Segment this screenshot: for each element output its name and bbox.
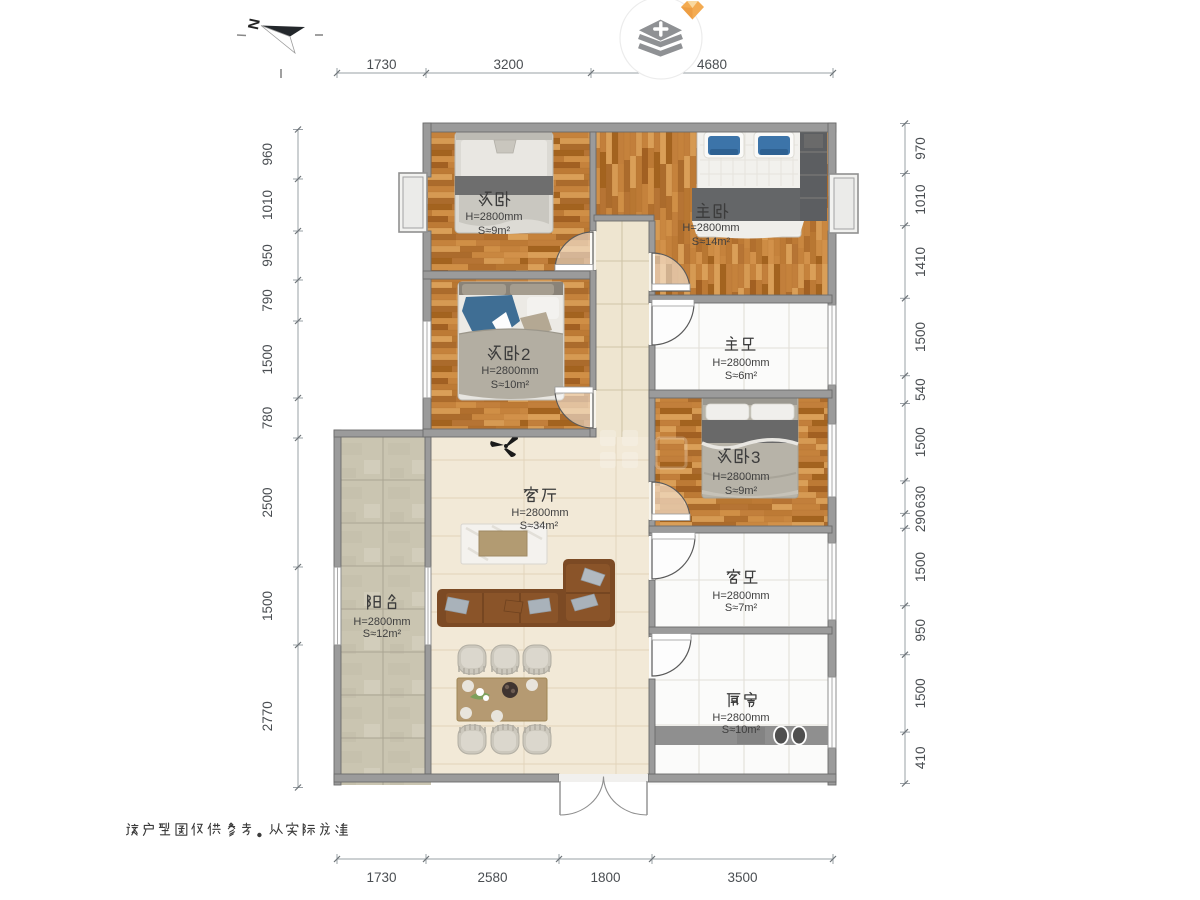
svg-text:1500: 1500: [913, 427, 928, 457]
svg-text:950: 950: [913, 619, 928, 642]
svg-text:3500: 3500: [727, 870, 757, 885]
svg-text:630: 630: [913, 486, 928, 509]
svg-text:S≈6m²: S≈6m²: [725, 370, 758, 382]
svg-text:970: 970: [913, 137, 928, 160]
svg-text:2: 2: [521, 345, 530, 364]
svg-text:H=2800mm: H=2800mm: [511, 507, 568, 519]
svg-text:780: 780: [260, 407, 275, 430]
svg-text:S≈10m²: S≈10m²: [722, 724, 761, 736]
svg-text:1800: 1800: [590, 870, 620, 885]
svg-text:4680: 4680: [697, 57, 727, 72]
svg-text:S≈12m²: S≈12m²: [363, 628, 402, 640]
svg-text:S≈9m²: S≈9m²: [725, 485, 758, 497]
svg-text:H=2800mm: H=2800mm: [712, 471, 769, 483]
svg-text:S≈14m²: S≈14m²: [692, 236, 731, 248]
svg-text:1410: 1410: [913, 247, 928, 277]
svg-text:950: 950: [260, 244, 275, 267]
svg-text:2500: 2500: [260, 487, 275, 517]
svg-text:1730: 1730: [366, 57, 396, 72]
svg-text:1500: 1500: [260, 591, 275, 621]
svg-text:1500: 1500: [913, 322, 928, 352]
svg-text:290: 290: [913, 510, 928, 533]
svg-text:3: 3: [751, 448, 760, 467]
svg-text:1010: 1010: [260, 190, 275, 220]
svg-text:H=2800mm: H=2800mm: [481, 365, 538, 377]
svg-text:S≈34m²: S≈34m²: [520, 520, 559, 532]
svg-text:2580: 2580: [477, 870, 507, 885]
svg-text:H=2800mm: H=2800mm: [465, 211, 522, 223]
svg-text:H=2800mm: H=2800mm: [712, 590, 769, 602]
svg-text:S≈10m²: S≈10m²: [491, 379, 530, 391]
svg-text:410: 410: [913, 747, 928, 770]
svg-text:1500: 1500: [913, 552, 928, 582]
svg-text:540: 540: [913, 378, 928, 401]
svg-text:H=2800mm: H=2800mm: [353, 616, 410, 628]
svg-text:1010: 1010: [913, 185, 928, 215]
svg-text:1500: 1500: [913, 678, 928, 708]
svg-text:S≈9m²: S≈9m²: [478, 225, 511, 237]
svg-text:H=2800mm: H=2800mm: [712, 712, 769, 724]
svg-text:960: 960: [260, 143, 275, 166]
svg-text:3200: 3200: [493, 57, 523, 72]
svg-text:H=2800mm: H=2800mm: [712, 357, 769, 369]
svg-text:1500: 1500: [260, 344, 275, 374]
svg-text:2770: 2770: [260, 701, 275, 731]
svg-text:790: 790: [260, 289, 275, 312]
svg-text:S≈7m²: S≈7m²: [725, 602, 758, 614]
svg-text:H=2800mm: H=2800mm: [682, 222, 739, 234]
svg-text:1730: 1730: [366, 870, 396, 885]
